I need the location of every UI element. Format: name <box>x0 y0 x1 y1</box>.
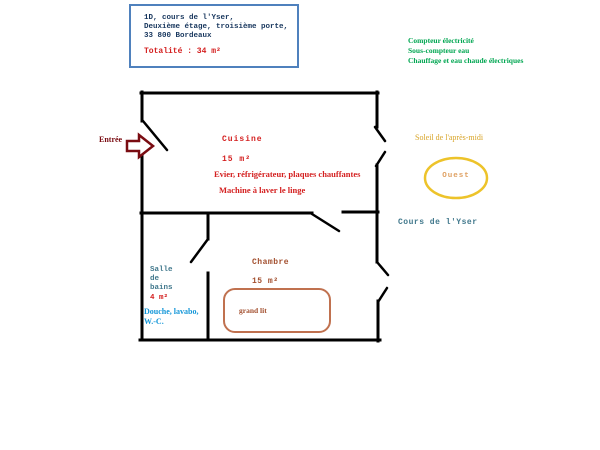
bedroom-name-label: Chambre <box>252 258 289 267</box>
entrance-arrow-icon <box>127 135 153 157</box>
floor-plan-drawing <box>0 0 600 450</box>
bedroom-window-tick-top <box>377 262 388 275</box>
bathroom-area-label: 4 m² <box>150 294 168 302</box>
bathroom-door-swing <box>191 239 208 262</box>
bed-label: grand lit <box>239 306 267 315</box>
street-label: Cours de l'Yser <box>398 218 478 227</box>
kitchen-equipment-line-1: Evier, réfrigérateur, plaques chauffante… <box>214 169 360 179</box>
bedroom-door-swing <box>312 214 339 231</box>
entrance-label: Entrée <box>99 135 122 144</box>
west-label: Ouest <box>425 172 487 180</box>
bathroom-equipment-label: Douche, lavabo, W.-C. <box>144 307 198 327</box>
afternoon-sun-label: Soleil de l'après-midi <box>415 133 483 142</box>
kitchen-area-label: 15 m² <box>222 155 251 164</box>
floor-plan-page: 1D, cours de l'Yser, Deuxième étage, tro… <box>0 0 600 450</box>
bathroom-name-label: Salle de bains <box>150 266 173 293</box>
kitchen-window-tick-top <box>375 127 385 141</box>
kitchen-equipment-line-2: Machine à laver le linge <box>219 185 305 195</box>
bedroom-area-label: 15 m² <box>252 277 279 286</box>
kitchen-name-label: Cuisine <box>222 135 263 144</box>
